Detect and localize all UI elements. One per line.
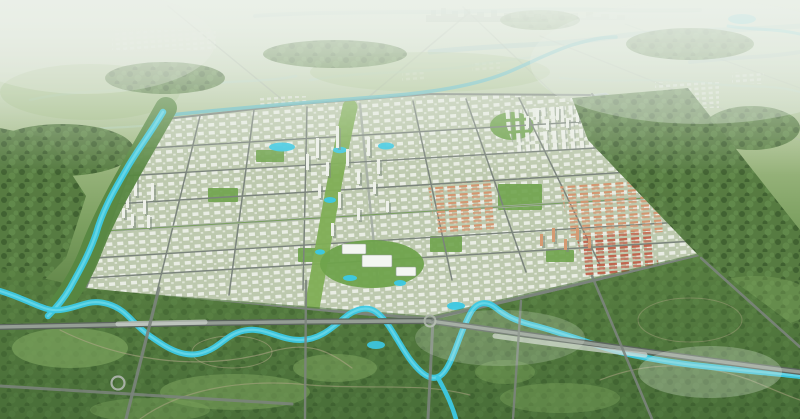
civic-pond <box>394 280 406 286</box>
park-pond <box>367 341 385 349</box>
ground-mist <box>638 346 782 398</box>
aerial-masterplan-rendering <box>0 0 800 419</box>
civic-building <box>342 244 366 254</box>
park-meadow <box>500 383 620 413</box>
city-masterplan-scene <box>0 0 800 419</box>
bridge-deck <box>118 322 205 324</box>
axis-pond <box>324 197 336 203</box>
civic-pond <box>343 275 357 281</box>
park-block <box>546 250 574 262</box>
park-meadow <box>12 328 128 368</box>
ground-mist <box>415 310 585 366</box>
axis-pond <box>315 249 325 254</box>
orange-district <box>428 180 498 234</box>
park-road-vertical <box>305 281 306 419</box>
civic-building <box>396 267 416 276</box>
civic-building <box>362 255 392 267</box>
park-block <box>208 188 238 202</box>
